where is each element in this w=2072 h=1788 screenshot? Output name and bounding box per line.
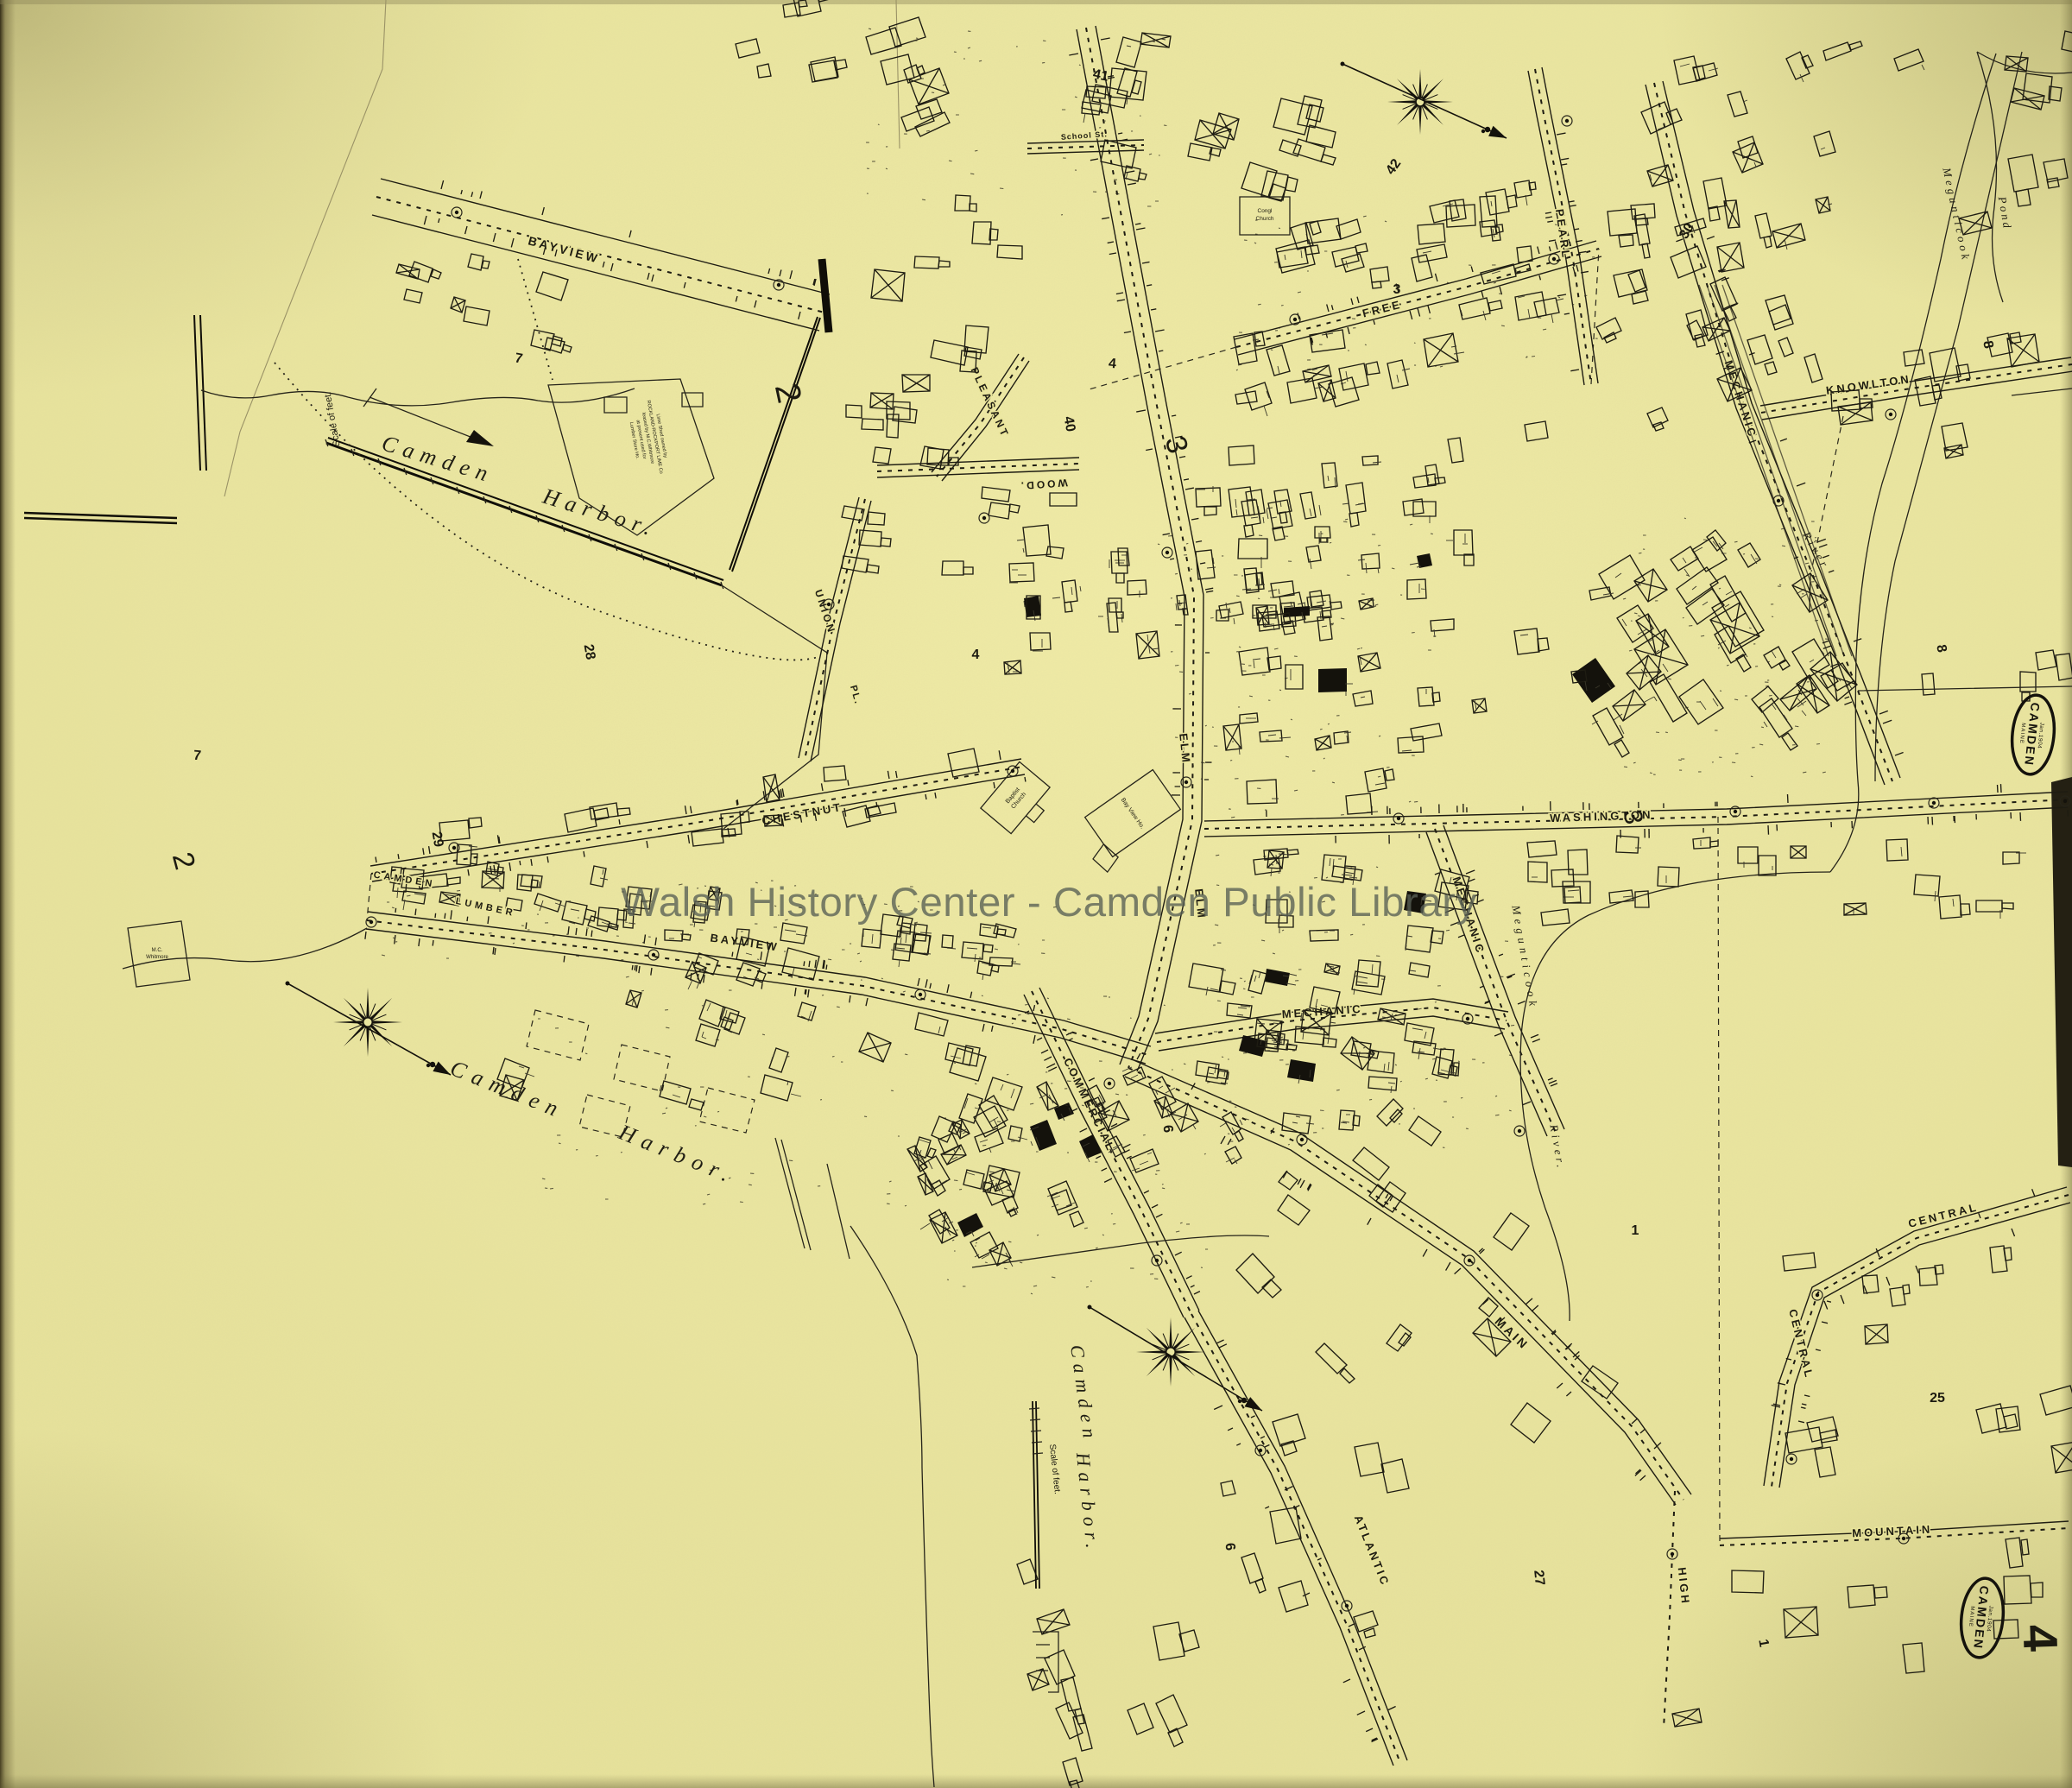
svg-text:3: 3 [1393,282,1401,297]
svg-text:6: 6 [1222,1542,1238,1551]
svg-text:4: 4 [972,648,980,662]
svg-text:Church: Church [1256,216,1274,222]
svg-text:40: 40 [1061,415,1078,433]
svg-text:29: 29 [429,831,446,849]
svg-text:M.C.: M.C. [152,948,163,953]
svg-text:28: 28 [581,643,598,661]
svg-text:27: 27 [1531,1570,1547,1587]
svg-text:41: 41 [1091,66,1109,84]
svg-text:1: 1 [1632,1223,1639,1238]
svg-text:4: 4 [1108,357,1116,372]
svg-text:Walsh History Center - Camden: Walsh History Center - Camden Public Lib… [621,880,1477,926]
svg-text:Congl: Congl [1258,208,1273,214]
svg-text:7: 7 [193,749,201,764]
svg-text:4: 4 [2012,1624,2068,1652]
svg-text:6: 6 [1160,1124,1176,1134]
svg-text:25: 25 [1930,1391,1945,1406]
svg-text:Whitmore: Whitmore [146,955,168,960]
